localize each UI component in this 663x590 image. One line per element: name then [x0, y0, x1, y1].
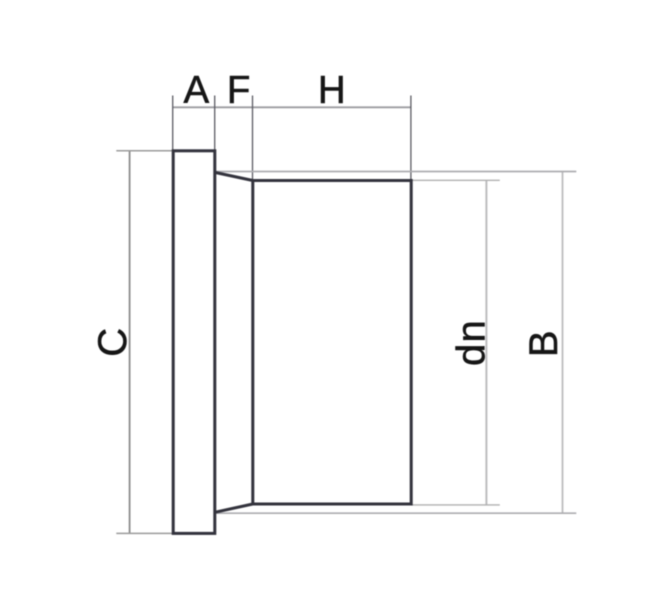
svg-text:B: B — [522, 330, 566, 357]
svg-text:C: C — [91, 328, 135, 357]
svg-text:F: F — [227, 69, 251, 112]
svg-text:dn: dn — [450, 319, 494, 366]
svg-text:A: A — [184, 69, 210, 112]
svg-text:H: H — [318, 69, 346, 112]
